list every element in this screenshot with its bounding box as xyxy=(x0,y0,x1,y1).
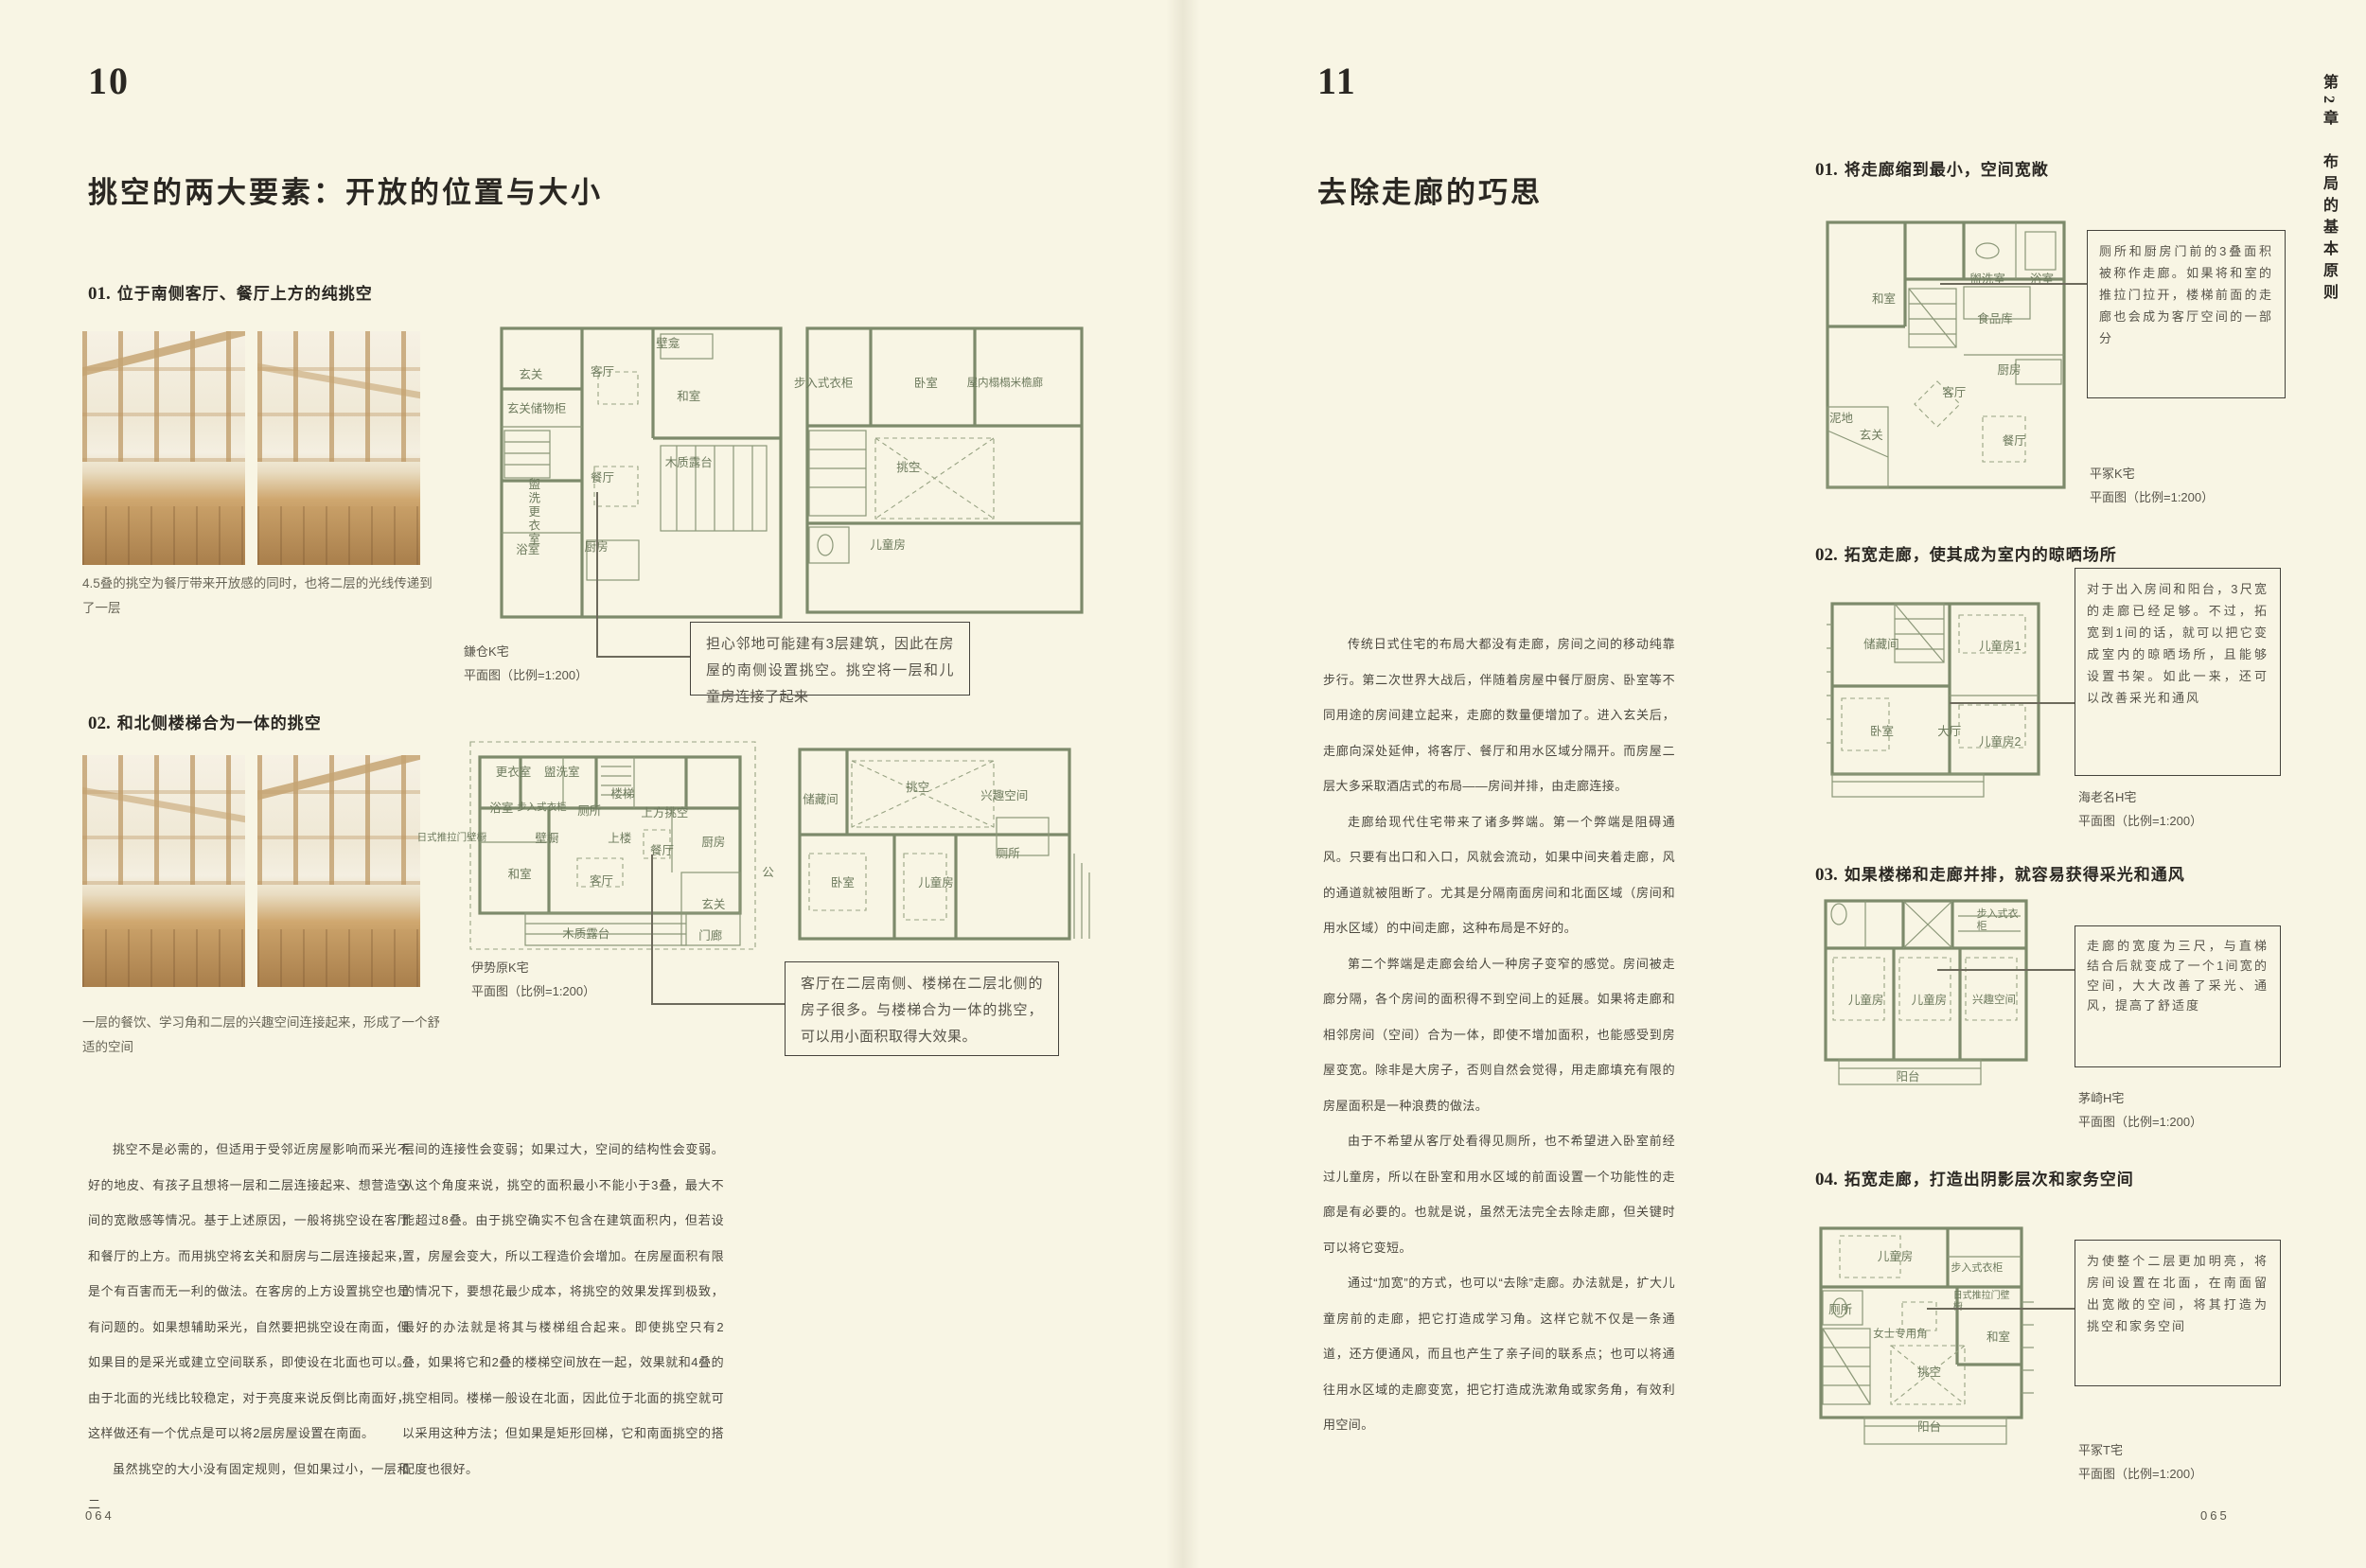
room-label: 兴趣空间 xyxy=(980,789,1028,804)
photo-decoration xyxy=(82,755,245,885)
room-label: 卧室 xyxy=(831,876,855,891)
page-number-right: 065 xyxy=(2200,1508,2230,1523)
room-label: 儿童房 xyxy=(1848,994,1884,1009)
paragraph: 虽然挑空的大小没有固定规则，但如果过小，一层和二 xyxy=(88,1452,410,1523)
section-number: 02. xyxy=(88,714,111,733)
floor-plan-drawing xyxy=(1827,596,2044,814)
photo-caption: 一层的餐饮、学习角和二层的兴趣空间连接起来，形成了一个舒适的空间 xyxy=(82,1011,442,1060)
plan-house-name: 鎌仓K宅 xyxy=(464,640,588,663)
floor-plan-drawing xyxy=(790,740,1103,953)
section-heading-r01: 01.将走廊缩到最小，空间宽敞 xyxy=(1815,156,2049,181)
leader-line xyxy=(651,1003,785,1005)
interior-photo-2 xyxy=(257,331,420,565)
room-label: 客厅 xyxy=(1942,386,1966,401)
room-label: 兴趣空间 xyxy=(1972,994,2016,1007)
section-title: 拓宽走廊，使其成为室内的晾晒场所 xyxy=(1845,546,2117,564)
floor-plan-isehara-1f: 更衣室盥洗室浴室步入式衣柜厕所楼梯上方挑空上楼日式推拉门壁橱壁橱和室客厅餐厅厨房… xyxy=(468,740,771,953)
section-number: 03. xyxy=(1815,865,1838,885)
room-label: 储藏间 xyxy=(1863,638,1899,653)
interior-photo-3 xyxy=(82,755,245,987)
room-label: 挑空 xyxy=(1917,1365,1941,1381)
photo-decoration xyxy=(82,506,245,565)
section-title: 和北侧楼梯合为一体的挑空 xyxy=(117,714,322,732)
section-heading-r03: 03.如果楼梯和走廊并排，就容易获得采光和通风 xyxy=(1815,861,2185,886)
leader-line xyxy=(596,492,598,657)
room-label: 屋内榻榻米檐廊 xyxy=(967,377,1044,390)
page-title: 挑空的两大要素：开放的位置与大小 xyxy=(88,168,603,211)
room-label: 厨房 xyxy=(1998,363,2022,379)
room-label: 壁橱 xyxy=(535,832,558,847)
room-label: 门廊 xyxy=(698,929,722,944)
room-label: 公 xyxy=(762,866,774,881)
section-number: 04. xyxy=(1815,1170,1838,1189)
room-label: 盥洗更衣室 xyxy=(525,478,540,547)
floor-plan-isehara-2f: 储藏间挑空兴趣空间卧室儿童房厕所 xyxy=(790,740,1103,953)
room-label: 儿童房2 xyxy=(1979,735,2021,750)
room-label: 日式推拉门壁橱 xyxy=(1953,1291,2014,1314)
room-label: 厨房 xyxy=(701,836,725,851)
floor-plan-kamakura-1f: 玄关玄关储物柜客厅壁龛和室木质露台餐厅盥洗更衣室浴室厨房 xyxy=(492,315,790,627)
room-label: 餐厅 xyxy=(591,471,614,486)
room-label: 儿童房 xyxy=(1912,994,1948,1009)
room-label: 日式推拉门壁橱 xyxy=(417,832,487,844)
plan-scale: 平面图（比例=1:200） xyxy=(2078,1110,2202,1134)
plan-house-name: 平冢K宅 xyxy=(2090,462,2214,485)
room-label: 玄关 xyxy=(1860,429,1883,444)
room-label: 盥洗室 xyxy=(544,766,580,781)
plan-caption: 海老名H宅 平面图（比例=1:200） xyxy=(2078,785,2202,833)
room-label: 步入式衣柜 xyxy=(794,377,854,392)
plan-house-name: 海老名H宅 xyxy=(2078,785,2202,809)
room-label: 盥洗室 xyxy=(1969,273,2005,288)
room-label: 浴室 xyxy=(516,543,539,558)
room-label: 和室 xyxy=(677,390,700,405)
plan-house-name: 平冢T宅 xyxy=(2078,1438,2202,1462)
room-label: 儿童房 xyxy=(918,876,954,891)
room-label: 挑空 xyxy=(906,781,929,796)
annotation-box: 客厅在二层南侧、楼梯在二层北侧的房子很多。与楼梯合为一体的挑空，可以用小面积取得… xyxy=(785,961,1059,1056)
room-label: 餐厅 xyxy=(2003,434,2026,449)
plan-caption: 鎌仓K宅 平面图（比例=1:200） xyxy=(464,640,588,687)
floor-plan-drawing xyxy=(1822,213,2073,497)
room-label: 厕所 xyxy=(997,847,1020,862)
body-text-column-1: 挑空不是必需的，但适用于受邻近房屋影响而采光不好的地皮、有孩子且想将一层和二层连… xyxy=(88,1132,410,1523)
page-number-left: 064 xyxy=(85,1508,115,1523)
paragraph: 通过“加宽”的方式，也可以“去除”走廊。办法就是，扩大儿童房前的走廊，把它打造成… xyxy=(1323,1265,1675,1443)
room-label: 餐厅 xyxy=(650,844,674,859)
room-label: 挑空 xyxy=(896,461,920,476)
room-label: 阳台 xyxy=(1897,1070,1920,1085)
room-label: 和室 xyxy=(508,868,532,883)
book-spread: 10 挑空的两大要素：开放的位置与大小 01.位于南侧客厅、餐厅上方的纯挑空 4… xyxy=(0,0,2366,1568)
floor-plan-drawing xyxy=(492,315,790,627)
section-title: 将走廊缩到最小，空间宽敞 xyxy=(1845,161,2049,179)
paragraph: 由于不希望从客厅处看得见厕所，也不希望进入卧室前经过儿童房，所以在卧室和用水区域… xyxy=(1323,1123,1675,1265)
floor-plan-drawing xyxy=(1815,1223,2038,1473)
room-label: 食品库 xyxy=(1977,312,2013,327)
room-label: 木质露台 xyxy=(562,927,609,943)
room-label: 儿童房1 xyxy=(1979,640,2021,655)
photo-decoration xyxy=(82,929,245,987)
paragraph: 第二个弊端是走廊会给人一种房子变窄的感觉。房间被走廊分隔，各个房间的面积得不到空… xyxy=(1323,946,1675,1124)
room-label: 和室 xyxy=(1986,1330,2010,1346)
room-label: 女士专用角 xyxy=(1873,1328,1928,1341)
room-label: 步入式衣柜 xyxy=(517,802,567,814)
paragraph: 层间的连接性会变弱；如果过大，空间的结构性会变弱。从这个角度来说，挑空的面积最小… xyxy=(402,1132,724,1487)
body-text-column-3: 传统日式住宅的布局大都没有走廊，房间之间的移动纯靠步行。第二次世界大战后，伴随着… xyxy=(1323,626,1675,1443)
room-label: 客厅 xyxy=(591,365,614,380)
room-label: 泥地 xyxy=(1829,412,1853,427)
interior-photo-1 xyxy=(82,331,245,565)
photo-decoration xyxy=(257,506,420,565)
annotation-box: 走廊的宽度为三尺，与直梯结合后就变成了一个1间宽的空间，大大改善了采光、通风，提… xyxy=(2075,925,2281,1067)
paragraph: 传统日式住宅的布局大都没有走廊，房间之间的移动纯靠步行。第二次世界大战后，伴随着… xyxy=(1323,626,1675,804)
plan-scale: 平面图（比例=1:200） xyxy=(471,979,595,1003)
section-title: 拓宽走廊，打造出阴影层次和家务空间 xyxy=(1845,1171,2134,1189)
room-label: 玄关 xyxy=(519,368,542,383)
room-label: 上方挑空 xyxy=(641,806,688,821)
plan-scale: 平面图（比例=1:200） xyxy=(2090,485,2214,509)
room-label: 儿童房 xyxy=(870,538,906,554)
leader-line xyxy=(651,854,653,1004)
room-label: 厕所 xyxy=(577,804,601,819)
plan-scale: 平面图（比例=1:200） xyxy=(464,663,588,687)
section-number: 02. xyxy=(1815,545,1838,565)
plan-scale: 平面图（比例=1:200） xyxy=(2078,1462,2202,1486)
chapter-tab: 第2章 布局的基本原则 xyxy=(2317,74,2340,471)
room-label: 楼梯 xyxy=(610,787,634,802)
plan-house-name: 茅崎H宅 xyxy=(2078,1086,2202,1110)
leader-line xyxy=(1937,969,2075,971)
room-label: 更衣室 xyxy=(496,766,532,781)
room-label: 储藏间 xyxy=(803,793,839,808)
paragraph: 走廊给现代住宅带来了诸多弊端。第一个弊端是阻碍通风。只要有出口和入口，风就会流动… xyxy=(1323,804,1675,946)
annotation-box: 厕所和厨房门前的3叠面积被称作走廊。如果将和室的推拉门拉开，楼梯前面的走廊也会成… xyxy=(2087,230,2286,398)
floor-plan-hiratsuka-t: 儿童房步入式衣柜日式推拉门壁橱厕所女士专用角和室挑空阳台 xyxy=(1815,1223,2038,1473)
room-label: 木质露台 xyxy=(665,456,713,471)
room-label: 和室 xyxy=(1872,292,1896,308)
section-title: 位于南侧客厅、餐厅上方的纯挑空 xyxy=(117,285,373,303)
page-index-number: 11 xyxy=(1317,59,1357,103)
room-label: 步入式衣柜 xyxy=(1951,1262,2003,1276)
page-title: 去除走廊的巧思 xyxy=(1317,168,1543,211)
section-number: 01. xyxy=(88,284,111,304)
section-title: 如果楼梯和走廊并排，就容易获得采光和通风 xyxy=(1845,866,2185,884)
room-label: 大厅 xyxy=(1937,725,1961,740)
page-seam xyxy=(1166,0,1200,1568)
photo-decoration xyxy=(257,331,420,462)
room-label: 阳台 xyxy=(1917,1420,1941,1436)
annotation-box: 为使整个二层更加明亮，将房间设置在北面，在南面留出宽敞的空间，将其打造为挑空和家… xyxy=(2075,1240,2281,1386)
section-heading-r04: 04.拓宽走廊，打造出阴影层次和家务空间 xyxy=(1815,1166,2134,1190)
body-text-column-2: 层间的连接性会变弱；如果过大，空间的结构性会变弱。从这个角度来说，挑空的面积最小… xyxy=(402,1132,724,1487)
section-heading-01: 01.位于南侧客厅、餐厅上方的纯挑空 xyxy=(88,280,373,305)
plan-caption: 茅崎H宅 平面图（比例=1:200） xyxy=(2078,1086,2202,1134)
interior-photo-4 xyxy=(257,755,420,987)
room-label: 客厅 xyxy=(590,874,613,890)
room-label: 步入式衣柜 xyxy=(1977,908,2024,935)
room-label: 卧室 xyxy=(1870,725,1894,740)
plan-caption: 平冢T宅 平面图（比例=1:200） xyxy=(2078,1438,2202,1486)
section-number: 01. xyxy=(1815,160,1838,180)
room-label: 浴室 xyxy=(489,802,513,817)
floor-plan-hiratsuka-k: 和室盥洗室浴室食品库厨房客厅餐厅泥地玄关 xyxy=(1822,213,2073,497)
leader-line xyxy=(1927,1308,2075,1310)
room-label: 浴室 xyxy=(2030,273,2054,288)
section-heading-02: 02.和北侧楼梯合为一体的挑空 xyxy=(88,710,322,734)
plan-caption: 平冢K宅 平面图（比例=1:200） xyxy=(2090,462,2214,509)
photo-decoration xyxy=(257,929,420,987)
paragraph: 挑空不是必需的，但适用于受邻近房屋影响而采光不好的地皮、有孩子且想将一层和二层连… xyxy=(88,1132,410,1452)
room-label: 厕所 xyxy=(1828,1303,1852,1318)
annotation-box: 对于出入房间和阳台，3尺宽的走廊已经足够。不过，拓宽到1间的话，就可以把它变成室… xyxy=(2075,568,2281,776)
room-label: 玄关 xyxy=(701,898,725,913)
room-label: 壁龛 xyxy=(656,337,680,352)
page-index-number: 10 xyxy=(88,59,130,103)
room-label: 玄关储物柜 xyxy=(507,402,568,417)
annotation-box: 担心邻地可能建有3层建筑，因此在房屋的南侧设置挑空。挑空将一层和儿童房连接了起来 xyxy=(690,622,970,696)
section-heading-r02: 02.拓宽走廊，使其成为室内的晾晒场所 xyxy=(1815,541,2117,566)
floor-plan-drawing xyxy=(800,317,1093,629)
photo-caption: 4.5叠的挑空为餐厅带来开放感的同时，也将二层的光线传递到了一层 xyxy=(82,572,434,621)
floor-plan-chigasaki-h: 步入式衣柜儿童房儿童房兴趣空间阳台 xyxy=(1820,895,2038,1108)
leader-line xyxy=(596,656,690,658)
floor-plan-kamakura-2f: 步入式衣柜卧室屋内榻榻米檐廊挑空儿童房 xyxy=(800,317,1093,629)
leader-line xyxy=(1940,283,2087,285)
plan-house-name: 伊势原K宅 xyxy=(471,956,595,979)
floor-plan-ebina-h: 储藏间儿童房1卧室大厅儿童房2 xyxy=(1827,596,2044,814)
room-label: 上楼 xyxy=(608,832,631,847)
plan-caption: 伊势原K宅 平面图（比例=1:200） xyxy=(471,956,595,1003)
leader-line xyxy=(1950,702,2075,704)
room-label: 卧室 xyxy=(914,377,938,392)
room-label: 儿童房 xyxy=(1878,1250,1914,1265)
plan-scale: 平面图（比例=1:200） xyxy=(2078,809,2202,833)
